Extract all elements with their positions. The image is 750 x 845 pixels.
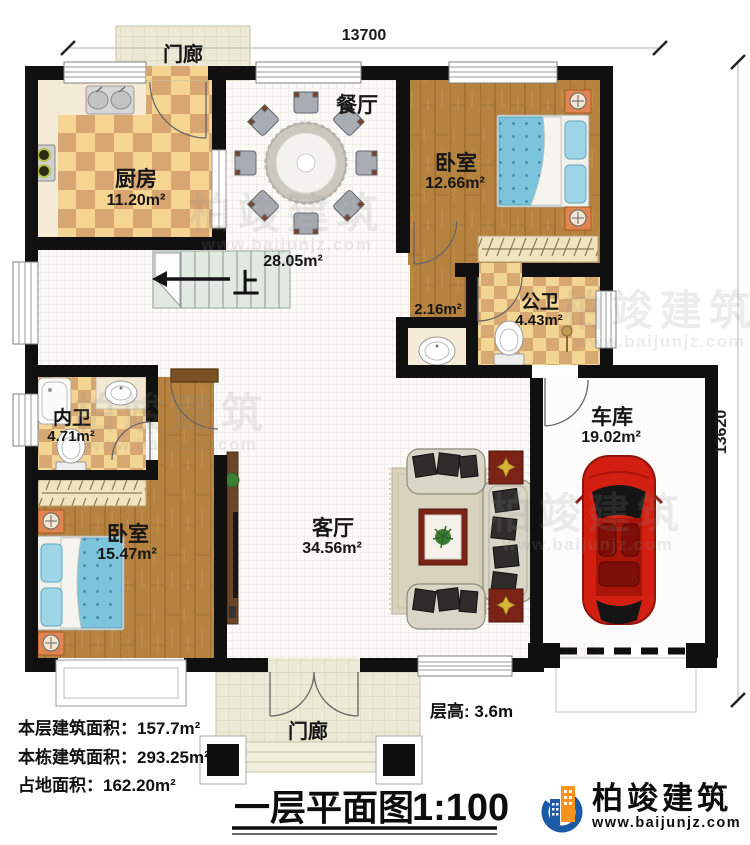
svg-text:柏竣建筑: 柏竣建筑 [74,390,270,437]
window [449,62,557,83]
plan-title: 一层平面图 [234,787,414,828]
entry-door-opening [268,658,360,672]
room-label-bedroom-left: 卧室 [107,522,149,546]
bay-window [56,658,186,706]
tv [233,512,238,598]
window [418,656,512,676]
stat-floor-area: 本层建筑面积：157.7m² [18,718,201,738]
window [256,62,361,83]
pillow [565,121,586,159]
svg-text:柏竣建筑: 柏竣建筑 [189,190,385,237]
window [13,262,38,344]
stairs-up-label: 上 [233,269,260,299]
room-label-kitchen: 厨房 [115,167,157,191]
side-table [489,451,523,484]
pillow [41,588,62,626]
decor [229,606,236,618]
svg-text:www.baijunjz.com: www.baijunjz.com [502,535,674,554]
dimension-right-value: 13620 [713,410,730,455]
room-area-garage: 19.02m² [581,429,641,446]
brand-logo-icon [538,786,585,836]
watermark: 柏竣建筑 www.baijunjz.com [74,390,270,454]
room-area-wash-closet: 2.16m² [414,301,462,318]
room-label-porch-top: 门廊 [163,42,203,66]
room-area-public-bath: 4.43m² [515,312,563,329]
room-area-kitchen: 11.20m² [107,192,166,209]
watermark: 柏竣建筑 www.baijunjz.com [562,287,750,351]
room-label-dining: 餐厅 [336,93,378,117]
pillow [41,544,62,582]
side-table [489,589,523,622]
plant [225,473,239,487]
room-label-porch-bottom: 门廊 [288,719,328,743]
plan-scale: 1:100 [412,787,509,829]
svg-text:柏竣建筑: 柏竣建筑 [562,287,750,334]
room-label-bedroom-top: 卧室 [435,151,477,175]
nightstand [565,207,591,230]
room-label-living: 客厅 [312,516,354,540]
brand-name: 柏竣建筑 [592,781,732,816]
room-area-living: 34.56m² [302,540,362,557]
svg-text:www.baijunjz.com: www.baijunjz.com [86,435,258,454]
dimension-top-value: 13700 [342,27,387,44]
svg-text:www.baijunjz.com: www.baijunjz.com [574,332,746,351]
nightstand [38,510,64,533]
room-area-bedroom-left: 15.47m² [97,546,157,563]
svg-text:柏竣建筑: 柏竣建筑 [490,490,686,537]
brand-url: www.baijunjz.com [591,815,741,831]
brand-logo: 柏竣建筑 www.baijunjz.com [538,781,741,836]
window [64,62,146,83]
watermark: 柏竣建筑 www.baijunjz.com [189,190,385,254]
stat-land-area: 占地面积：162.20m² [18,775,176,795]
pillow [565,165,586,203]
floor-plan-canvas: 13700 13620 门廊 厨房 11.20m² 餐厅 28.05m² 卧室 … [0,0,750,845]
room-area-dining: 28.05m² [263,253,323,270]
bath-door-opening [479,263,522,277]
room-label-garage: 车库 [591,405,633,429]
room-label-public-bath: 公卫 [521,291,559,313]
room-area-bedroom-top: 12.66m² [425,175,485,192]
washbasin-closet [419,337,455,365]
watermark: 柏竣建筑 www.baijunjz.com [490,490,686,554]
svg-text:www.baijunjz.com: www.baijunjz.com [201,235,373,254]
stat-building-area: 本栋建筑面积：293.25m² [18,747,210,767]
garage-door-opening [532,365,578,378]
nightstand [565,90,591,113]
floor-height-note: 层高: 3.6m [430,701,513,721]
floor-plan-drawing: 13700 13620 门廊 厨房 11.20m² 餐厅 28.05m² 卧室 … [0,0,750,845]
driveway [556,658,696,712]
nightstand [38,632,64,655]
door-leaf-open [171,369,218,382]
window [13,394,38,446]
kitchen-door-opening [146,66,208,80]
tv-cabinet [225,452,239,624]
